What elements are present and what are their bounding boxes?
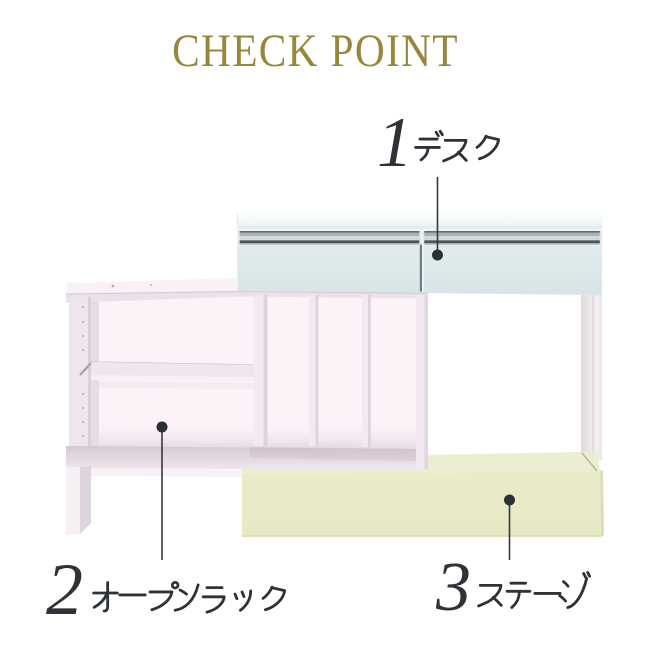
- svg-text:1: 1: [377, 104, 413, 182]
- svg-text:CHECK POINT: CHECK POINT: [172, 25, 459, 77]
- svg-text:2: 2: [46, 549, 83, 631]
- svg-text:3: 3: [435, 549, 471, 626]
